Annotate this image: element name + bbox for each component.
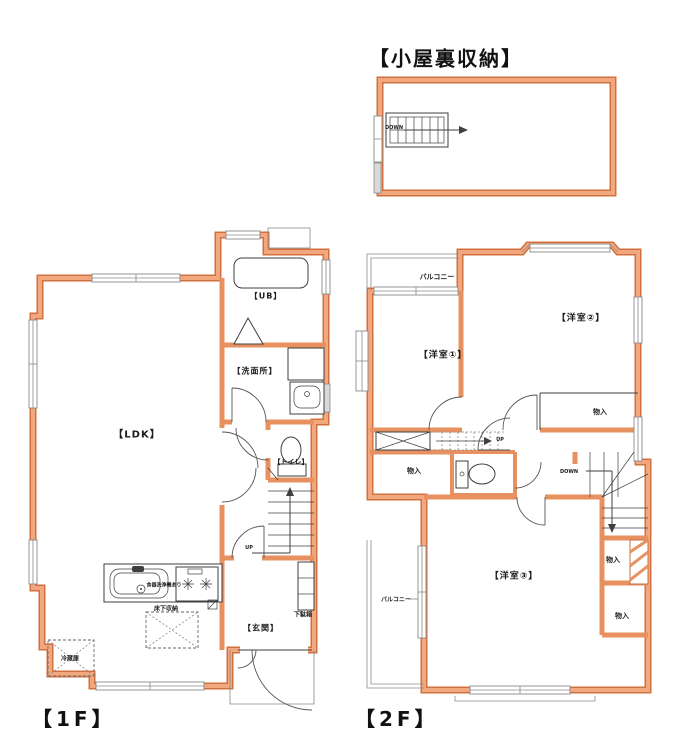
room-label-room1: 【洋室①】 [419, 348, 468, 361]
floorplan-drawing [0, 0, 689, 750]
hatch-storage [630, 540, 648, 584]
floorplan-page: 【小屋裏収納】 DOWN 【LDK】 【UB】 【洗面所】 【トイレ】 【玄関】… [0, 0, 689, 750]
floor2-door-arcs [429, 395, 545, 525]
label-dishwasher-note: 食器洗浄機あり [146, 582, 181, 589]
label-balcony-left: バルコニー [381, 595, 411, 604]
label-shoe-cabinet: 下駄箱 [294, 610, 312, 619]
label-up-1f: UP [245, 545, 253, 551]
room-label-toilet: 【トイレ】 [274, 457, 309, 467]
label-underfloor-storage: 床下収納 [154, 604, 178, 613]
attic-down-label: DOWN [385, 125, 403, 131]
room-label-ldk: 【LDK】 [113, 426, 160, 441]
bath-folding-door [234, 318, 263, 344]
floor1-plan [29, 228, 330, 710]
washing-machine-pan [288, 348, 324, 380]
room-label-entrance: 【玄関】 [243, 623, 279, 634]
label-up-2f: UP [496, 437, 504, 443]
attic-plan [374, 80, 613, 193]
attic-stair-row [376, 432, 504, 450]
label-down-2f: DOWN [560, 469, 578, 475]
label-closet-room2: 物入 [593, 407, 607, 417]
floor2-label: 【2F】 [355, 703, 439, 732]
floor1-door-arcs [222, 388, 268, 558]
label-closet-right-top: 物入 [606, 555, 620, 565]
label-balcony-top: バルコニー [420, 272, 455, 282]
balcony-left-railing [367, 540, 424, 688]
room-label-washroom: 【洗面所】 [233, 366, 278, 377]
attic-outer-wall [380, 80, 613, 193]
entrance-porch [230, 650, 314, 710]
room-label-unit-bath: 【UB】 [250, 291, 283, 302]
stairs-1f-arrow [252, 489, 290, 553]
room-label-room3: 【洋室③】 [490, 569, 539, 582]
label-refrigerator: 冷蔵庫 [61, 654, 79, 663]
closet-room2-lines [540, 393, 638, 430]
floor2-interior-walls [370, 291, 648, 635]
bathtub [234, 258, 308, 288]
attic-wall-gray [374, 163, 381, 193]
shoe-cabinet-box [298, 562, 314, 610]
label-closet-right-bottom: 物入 [615, 611, 629, 621]
label-closet-left: 物入 [407, 466, 421, 476]
floor1-label: 【1F】 [32, 703, 116, 732]
faucet-icon [132, 566, 144, 572]
attic-title: 【小屋裏収納】 [369, 43, 523, 72]
stairs-1f [252, 487, 314, 553]
room-label-room2: 【洋室②】 [557, 311, 606, 324]
washbasin [290, 382, 324, 414]
toilet-2f [456, 461, 495, 488]
underfloor-storage-box [146, 612, 198, 648]
